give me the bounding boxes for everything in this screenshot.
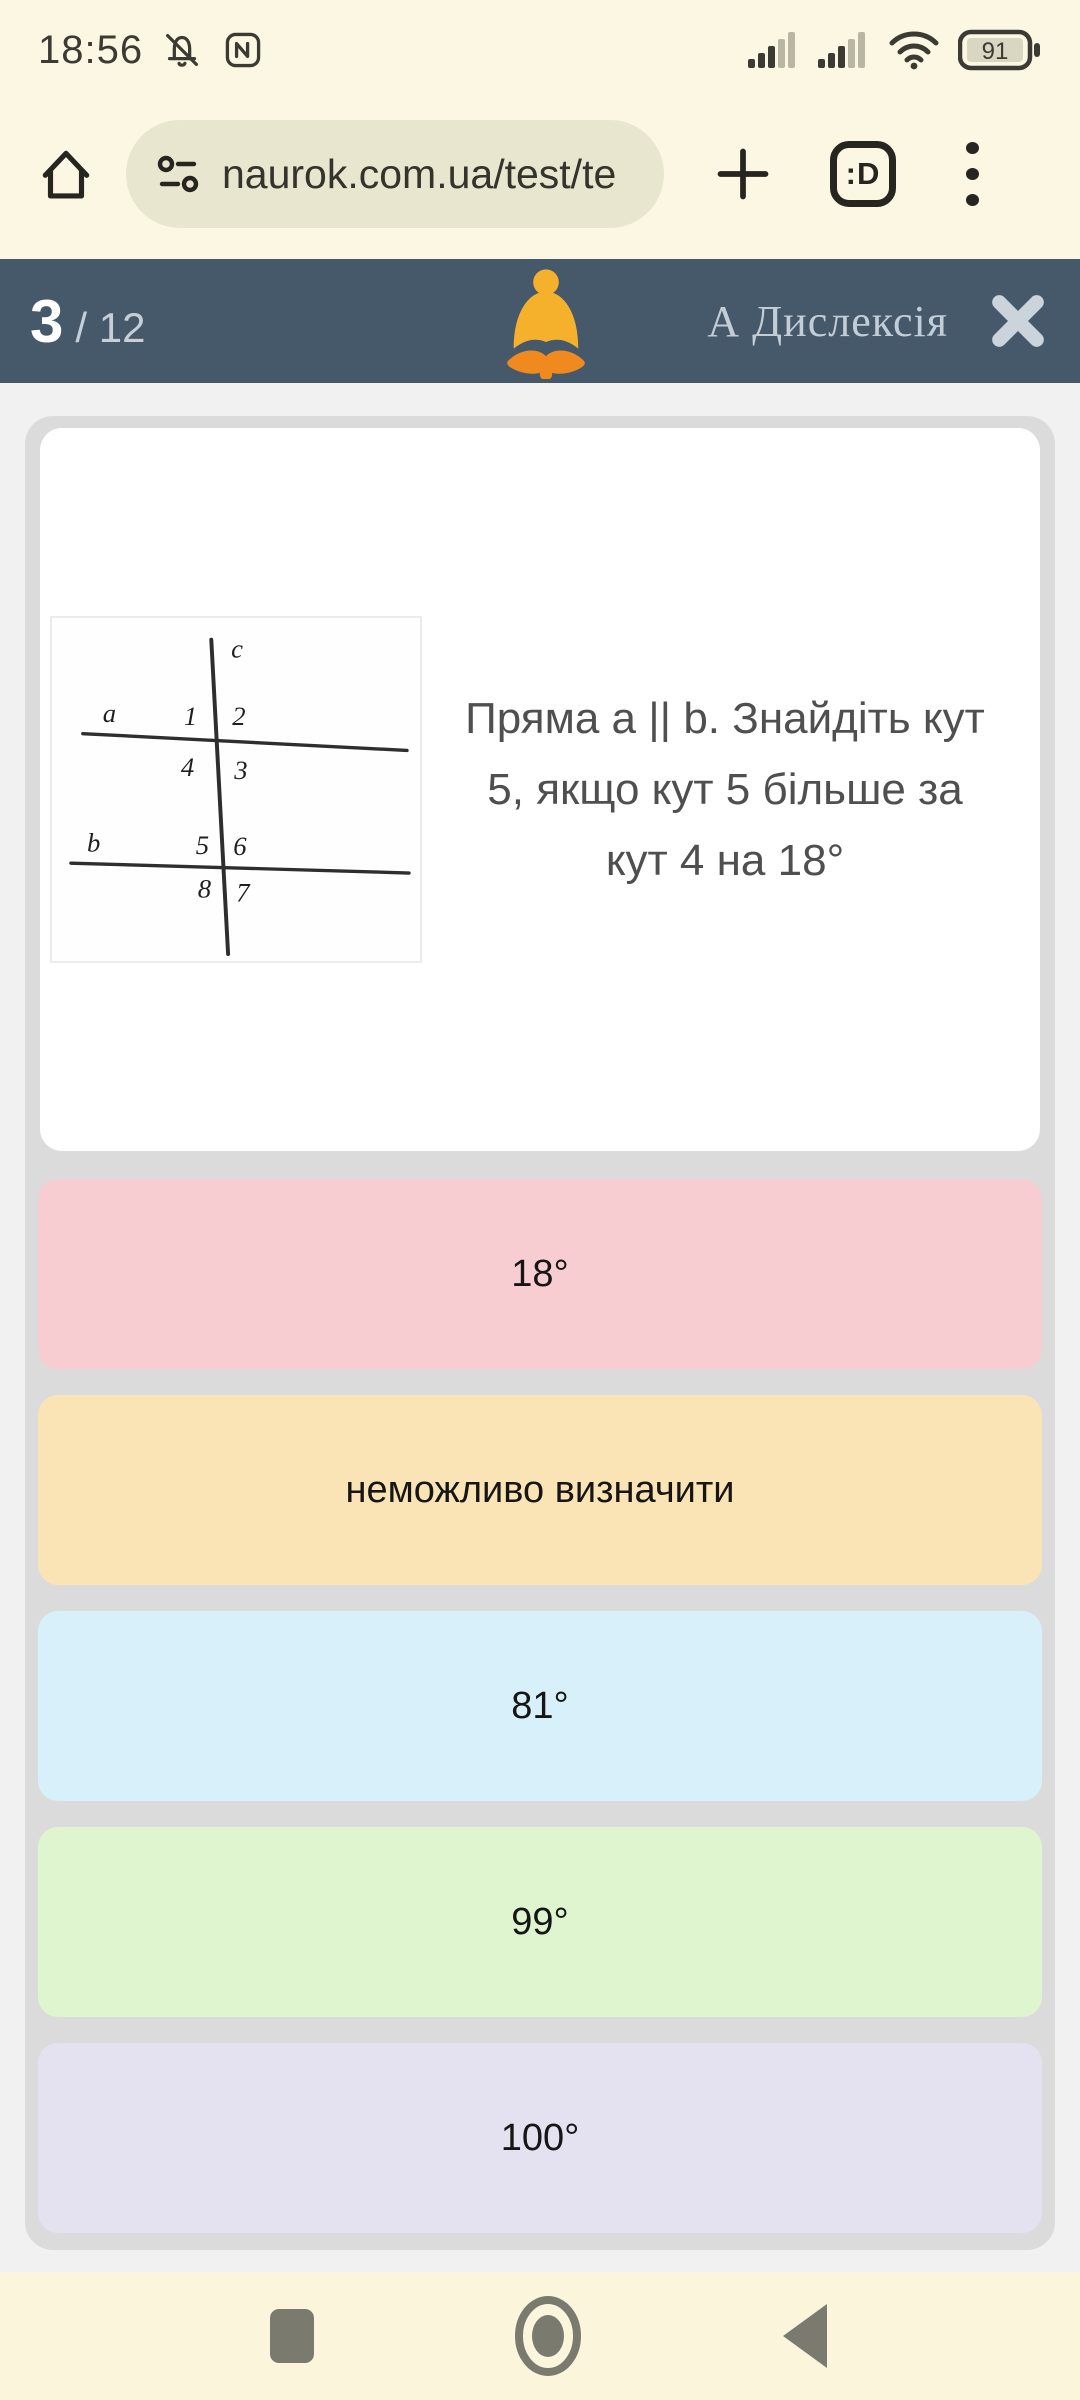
total-questions-label: / 12 (75, 304, 145, 352)
browser-toolbar: naurok.com.ua/test/te :D (0, 104, 1080, 244)
site-settings-icon[interactable] (154, 150, 202, 198)
phone-screen: 18:56 (0, 0, 1080, 2400)
answer-option-1-label: 18° (511, 1253, 568, 1296)
wifi-icon (888, 29, 940, 71)
answer-option-1[interactable]: 18° (38, 1179, 1042, 1369)
home-circle-icon[interactable] (513, 2272, 583, 2400)
answer-option-3-label: 81° (511, 1685, 568, 1728)
figure-angle-8: 8 (198, 874, 212, 904)
android-nav-bar (0, 2272, 1080, 2400)
tab-switcher[interactable]: :D (830, 141, 896, 207)
nfc-icon (221, 28, 265, 72)
status-bar: 18:56 (0, 14, 1080, 86)
answer-option-5[interactable]: 100° (38, 2043, 1042, 2233)
figure-label-b: b (87, 827, 100, 857)
figure-angle-4: 4 (181, 752, 194, 782)
signal-sim2-icon (818, 30, 870, 70)
back-triangle-icon[interactable] (777, 2272, 833, 2400)
dyslexia-mode-toggle[interactable]: А Дислексія (707, 296, 948, 347)
answer-option-3[interactable]: 81° (38, 1611, 1042, 1801)
figure-label-c: c (231, 634, 243, 664)
url-text[interactable]: naurok.com.ua/test/te (222, 151, 616, 198)
figure-angle-2: 2 (232, 701, 245, 731)
figure-angle-5: 5 (196, 830, 209, 860)
clock: 18:56 (38, 28, 143, 73)
question-text: Пряма a || b. Знайдіть кут 5, якщо кут 5… (422, 683, 1040, 897)
question-progress: 3 / 12 (30, 287, 145, 356)
browser-menu-icon[interactable] (960, 142, 984, 206)
answer-option-4-label: 99° (511, 1901, 568, 1944)
figure-label-a: a (103, 698, 116, 728)
figure-angle-3: 3 (233, 755, 247, 785)
answer-option-2[interactable]: неможливо визначити (38, 1395, 1042, 1585)
battery-percent-text: 91 (982, 38, 1009, 65)
signal-sim1-icon (748, 30, 800, 70)
current-question-number: 3 (30, 287, 63, 356)
figure-angle-1: 1 (184, 701, 197, 731)
question-card: c a b 1 2 3 4 5 6 7 8 Пряма a || b. Знай… (40, 428, 1040, 1151)
bell-slash-icon (159, 27, 205, 73)
home-icon[interactable] (34, 142, 98, 206)
figure-angle-7: 7 (236, 878, 251, 908)
new-tab-icon[interactable] (712, 143, 774, 205)
figure-angle-6: 6 (233, 831, 247, 861)
quiz-board: c a b 1 2 3 4 5 6 7 8 Пряма a || b. Знай… (25, 416, 1055, 2250)
answer-option-5-label: 100° (501, 2117, 580, 2160)
url-bar[interactable]: naurok.com.ua/test/te (126, 120, 664, 228)
naurok-bell-logo-icon (503, 267, 589, 379)
close-icon[interactable] (986, 289, 1050, 353)
recents-square-icon[interactable] (262, 2272, 322, 2400)
tab-count: :D (846, 156, 881, 192)
quiz-header: 3 / 12 А Дислексія (0, 259, 1080, 383)
battery-icon: 91 (958, 28, 1042, 72)
geometry-figure: c a b 1 2 3 4 5 6 7 8 (50, 616, 422, 963)
top-bars: 18:56 (0, 0, 1080, 259)
answer-option-2-label: неможливо визначити (346, 1469, 735, 1512)
answer-option-4[interactable]: 99° (38, 1827, 1042, 2017)
